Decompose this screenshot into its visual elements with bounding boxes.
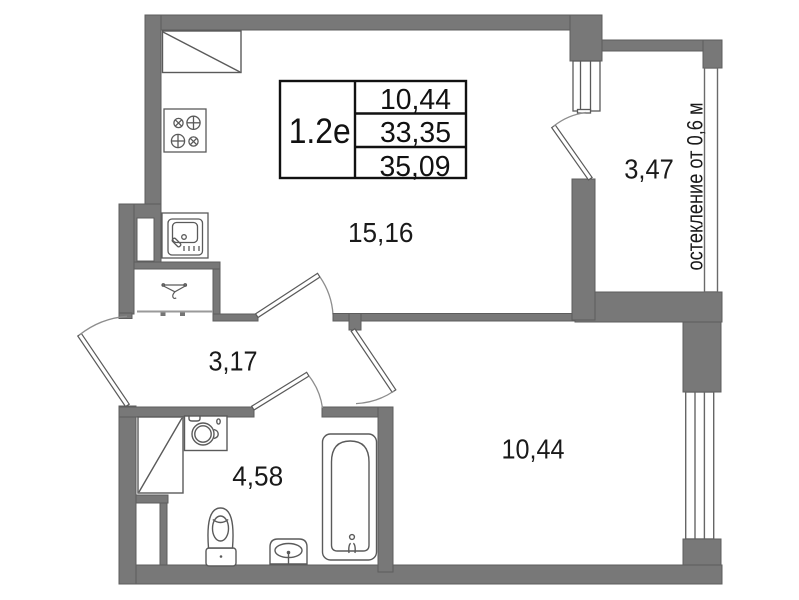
svg-text:3,17: 3,17 xyxy=(209,346,258,377)
svg-text:1.2е: 1.2е xyxy=(289,112,351,151)
svg-text:33,35: 33,35 xyxy=(380,117,451,149)
svg-text:остекление от 0,6 м: остекление от 0,6 м xyxy=(683,103,708,271)
svg-text:35,09: 35,09 xyxy=(380,151,451,183)
svg-text:3,47: 3,47 xyxy=(624,153,674,184)
svg-text:15,16: 15,16 xyxy=(348,217,414,248)
svg-text:4,58: 4,58 xyxy=(232,461,283,492)
svg-text:10,44: 10,44 xyxy=(502,433,565,464)
svg-text:10,44: 10,44 xyxy=(380,84,451,116)
